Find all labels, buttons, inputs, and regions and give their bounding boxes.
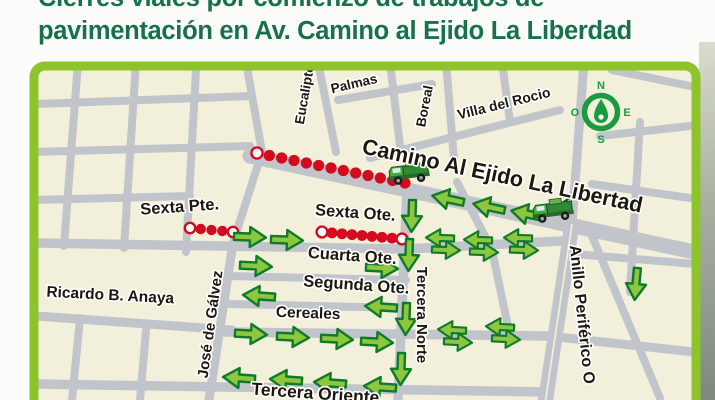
closure-dot <box>347 229 358 240</box>
closure-dot <box>288 155 299 166</box>
compass-south-label: S <box>597 134 604 146</box>
closure-endpoint-dot <box>251 147 262 158</box>
closure-dot <box>206 225 216 235</box>
closure-dot <box>301 157 312 168</box>
closure-dot <box>377 232 388 243</box>
compass-west-label: O <box>571 107 580 119</box>
closure-dot <box>375 172 386 183</box>
closure-dot <box>362 170 373 181</box>
closure-dot <box>217 226 227 236</box>
street-label-tercera-norte: Tercera Norte <box>413 267 430 363</box>
closure-dot <box>196 224 206 234</box>
closure-dot <box>357 230 368 241</box>
closure-endpoint-dot <box>185 223 195 233</box>
closure-dot <box>337 228 348 239</box>
road-closure-infographic: Cierres viales por comienzo de trabajos … <box>0 0 715 400</box>
closure-endpoint-dot <box>317 227 328 238</box>
closure-dot <box>325 162 336 173</box>
closure-dot <box>264 150 275 161</box>
closure-dot <box>350 167 361 178</box>
closure-dot <box>313 160 324 171</box>
street-label-cereales: Cereales <box>276 304 341 323</box>
compass-north-label: N <box>597 80 605 92</box>
closure-dot <box>338 165 349 176</box>
closure-dot <box>276 152 287 163</box>
closure-dot <box>327 227 338 238</box>
road-closure-map: EucaliptoPalmasBorealVilla del RocioCami… <box>0 0 715 400</box>
compass-east-label: E <box>623 107 630 119</box>
closure-dot <box>367 231 378 242</box>
